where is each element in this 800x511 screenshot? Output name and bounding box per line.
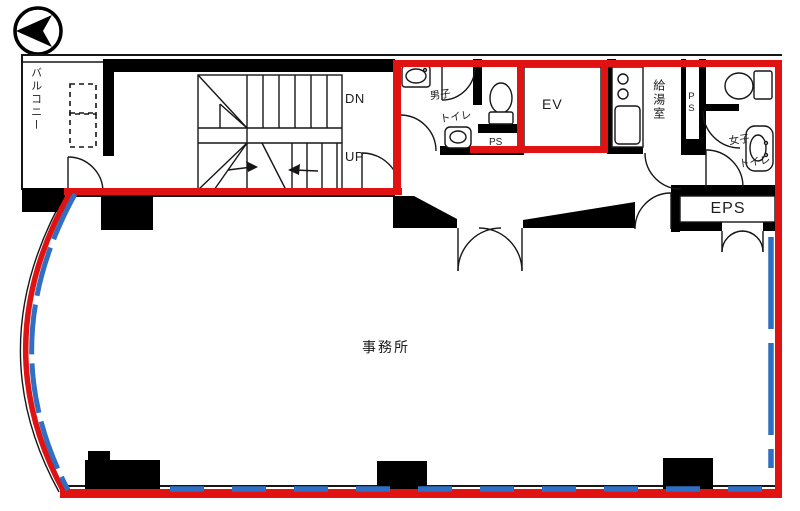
tapered-wall-right xyxy=(523,202,635,228)
office-label: 事務所 xyxy=(362,339,410,355)
mens-toilet-label: 男子 トイレ xyxy=(416,86,469,129)
mens-sink-icon xyxy=(402,66,430,87)
walls xyxy=(22,59,782,492)
corridor-door xyxy=(635,193,671,229)
floor-plan-svg xyxy=(0,0,800,511)
womens-toilet-bowl-icon xyxy=(725,71,772,99)
eps-label: EPS xyxy=(690,200,766,218)
stair-break-line xyxy=(262,143,286,190)
stairs-dn-label: DN xyxy=(345,92,365,107)
staircase xyxy=(198,75,342,190)
red-top-line xyxy=(393,60,782,67)
balcony-door xyxy=(68,157,103,192)
urinal-icon xyxy=(445,127,471,148)
floor-plan: バルコニー DN UP 男子 トイレ PS EV 給湯室 PS 女子 トイレ E… xyxy=(0,0,800,511)
red-right-line xyxy=(775,60,782,497)
ps-label-mens: PS xyxy=(489,137,502,149)
balcony-equipment xyxy=(70,84,96,147)
kitchen-counter-icon xyxy=(612,67,643,147)
outer-walls xyxy=(20,55,782,492)
red-ev-right xyxy=(601,60,608,153)
north-arrow-icon xyxy=(15,8,61,54)
balcony-divider-wall xyxy=(103,66,114,156)
tapered-wall-left xyxy=(393,196,457,228)
entrance-double-door xyxy=(458,228,522,271)
kitchenette-door xyxy=(645,153,681,189)
pillar xyxy=(663,458,713,491)
pillar xyxy=(101,196,153,230)
pillar xyxy=(85,460,160,491)
top-wall xyxy=(103,59,395,72)
elevator-label: EV xyxy=(542,96,563,112)
eps-double-door xyxy=(722,231,763,252)
red-boundary xyxy=(26,60,782,498)
stairs-up-label: UP xyxy=(345,150,364,165)
womens-toilet-label: 女子 トイレ xyxy=(715,131,768,174)
red-ev-left xyxy=(517,60,524,153)
kitchenette-label: 給湯室 xyxy=(651,79,665,121)
ps-shaft-label: PS xyxy=(685,91,696,115)
mens-toilet-bowl-icon xyxy=(489,83,513,124)
eps-top-wall xyxy=(671,185,782,196)
balcony-label: バルコニー xyxy=(29,67,42,132)
